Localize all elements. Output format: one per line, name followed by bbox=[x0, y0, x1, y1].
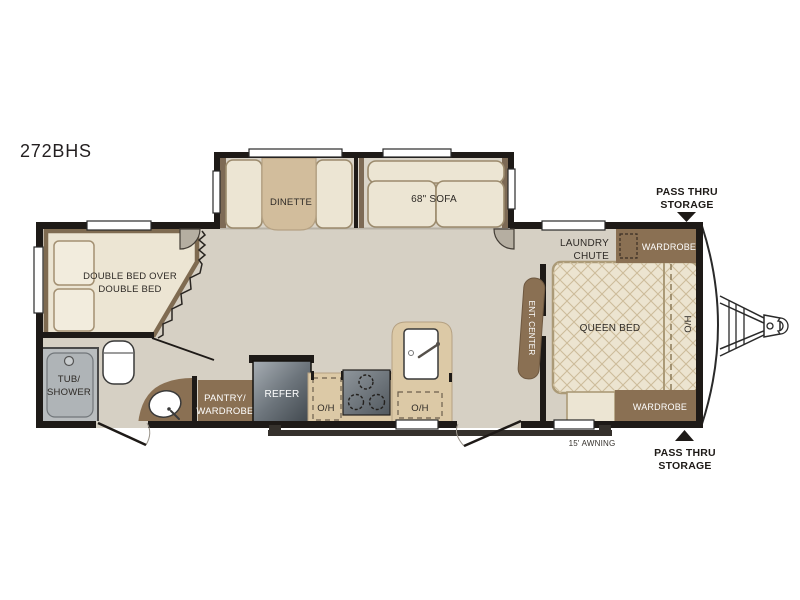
window-slideout-top-left bbox=[249, 149, 342, 157]
oh-right-label: O/H bbox=[411, 403, 429, 414]
slideout-room: DINETTE 68" SOFA bbox=[220, 158, 508, 230]
window-slideout-side-left bbox=[213, 171, 220, 213]
stove bbox=[343, 370, 390, 415]
queen-bed-label: QUEEN BED bbox=[580, 323, 641, 334]
pass-thru-storage-top: PASS THRU STORAGE bbox=[656, 186, 718, 222]
slideout-divider-wall bbox=[354, 158, 358, 228]
bed-foot-bench bbox=[567, 392, 615, 422]
bed-overhead-label: O/H bbox=[683, 315, 694, 333]
floorplan-page: 272BHS DINETTE 68" SOFA bbox=[0, 0, 800, 600]
dinette-bench-right bbox=[316, 160, 352, 228]
window-bottom-galley bbox=[396, 420, 438, 429]
shower-drain-icon bbox=[65, 357, 74, 366]
bunk-label-line2: DOUBLE BED bbox=[98, 284, 161, 295]
hitch-a-frame bbox=[720, 296, 788, 356]
front-wall bbox=[696, 222, 703, 428]
trailer-nose bbox=[702, 226, 718, 424]
counter-tick-3 bbox=[311, 371, 314, 380]
arrow-up-icon bbox=[675, 430, 694, 441]
tub-label-line2: SHOWER bbox=[47, 387, 91, 398]
laundry-label-line1: LAUNDRY bbox=[560, 238, 609, 249]
pass-thru-storage-bottom: PASS THRU STORAGE bbox=[654, 430, 716, 472]
laundry-label-line2: CHUTE bbox=[574, 251, 610, 262]
slideout-divider-trim bbox=[359, 158, 364, 228]
top-wall-right bbox=[510, 222, 702, 229]
tub-label-line1: TUB/ bbox=[58, 374, 81, 385]
pantry-label-line2: WARDROBE bbox=[196, 406, 253, 417]
window-slideout-side-right bbox=[508, 169, 515, 209]
pass-thru-top-line1: PASS THRU bbox=[656, 186, 718, 198]
window-bottom-bedroom bbox=[554, 420, 594, 429]
awning-rail bbox=[268, 430, 612, 436]
slideout-left-trim bbox=[220, 158, 226, 228]
counter-tick-4 bbox=[449, 373, 452, 382]
bunk-pillow-bottom bbox=[54, 289, 94, 331]
wardrobe-top-label: WARDROBE bbox=[642, 242, 696, 252]
sofa-back bbox=[368, 161, 504, 183]
refer-label: REFER bbox=[265, 389, 300, 400]
window-slideout-top-right bbox=[383, 149, 451, 157]
pantry-label-line1: PANTRY/ bbox=[204, 393, 246, 404]
window-bunk-top bbox=[87, 221, 151, 230]
oh-left-label: O/H bbox=[317, 403, 335, 414]
dinette-bench-left bbox=[226, 160, 262, 228]
wardrobe-bottom-label: WARDROBE bbox=[633, 402, 687, 412]
toilet bbox=[103, 341, 134, 384]
ent-center-label: ENT. CENTER bbox=[527, 301, 536, 356]
kitchen-faucet-tip bbox=[436, 342, 440, 346]
sofa-label: 68" SOFA bbox=[411, 194, 457, 205]
bathroom-wall bbox=[36, 332, 154, 338]
dinette-label: DINETTE bbox=[270, 197, 312, 208]
bunk-label-line1: DOUBLE BED OVER bbox=[83, 271, 177, 282]
model-number-label: 272BHS bbox=[20, 141, 92, 161]
pass-thru-top-line2: STORAGE bbox=[660, 199, 713, 211]
pass-thru-bottom-line2: STORAGE bbox=[658, 460, 711, 472]
bath-faucet-base bbox=[167, 407, 171, 411]
awning-label: 15' AWNING bbox=[569, 439, 616, 448]
arrow-down-icon bbox=[677, 212, 696, 222]
window-rear bbox=[34, 247, 43, 313]
dinette-table bbox=[262, 158, 316, 230]
window-bedroom-top bbox=[542, 221, 605, 230]
pass-thru-bottom-line1: PASS THRU bbox=[654, 447, 716, 459]
floorplan-svg: 272BHS DINETTE 68" SOFA bbox=[0, 0, 800, 600]
